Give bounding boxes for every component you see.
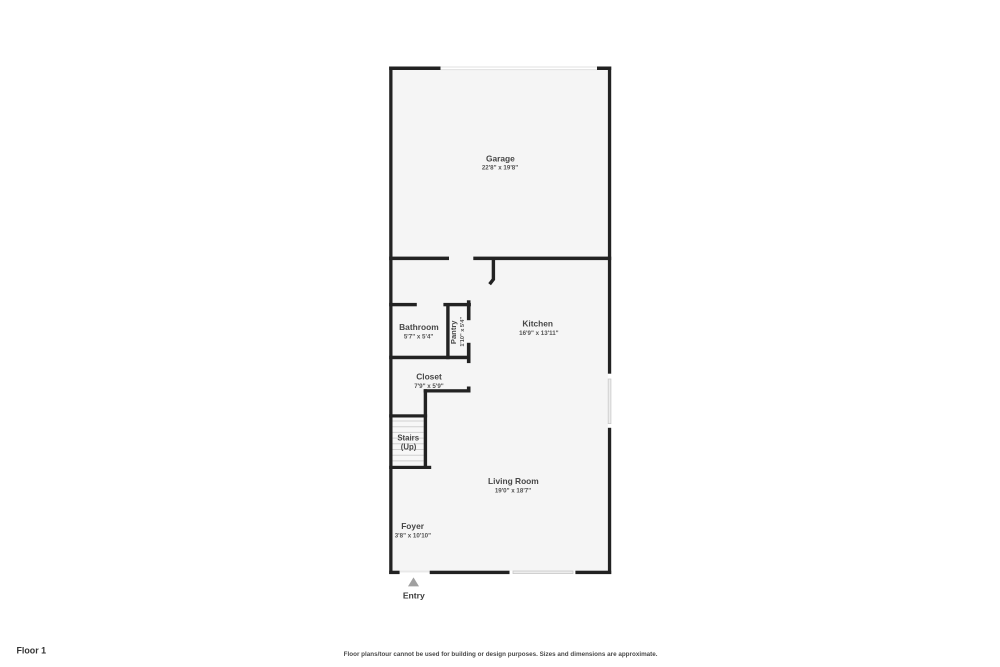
svg-text:19'0" x 18'7": 19'0" x 18'7" [495,488,531,495]
svg-text:Floor 1: Floor 1 [17,646,47,656]
svg-text:3'8" x 10'10": 3'8" x 10'10" [395,533,431,540]
svg-text:Garage: Garage [486,153,515,163]
svg-text:Pantry: Pantry [449,320,458,344]
svg-text:Entry: Entry [403,590,425,600]
svg-text:Stairs: Stairs [397,433,419,442]
svg-text:Living Room: Living Room [488,476,539,486]
svg-text:(Up): (Up) [401,442,417,451]
svg-text:Kitchen: Kitchen [522,319,553,329]
svg-text:16'9" x 13'11": 16'9" x 13'11" [519,330,559,337]
svg-text:1'10" x 5'4": 1'10" x 5'4" [460,317,466,347]
svg-text:7'9" x 5'9": 7'9" x 5'9" [414,383,444,390]
svg-text:Foyer: Foyer [401,521,425,531]
svg-text:5'7" x 5'4": 5'7" x 5'4" [404,333,434,340]
svg-text:Floor plans/tour cannot be use: Floor plans/tour cannot be used for buil… [344,651,658,658]
svg-text:22'8" x 19'8": 22'8" x 19'8" [482,165,518,172]
svg-text:Bathroom: Bathroom [399,322,439,332]
svg-text:Closet: Closet [416,372,442,382]
